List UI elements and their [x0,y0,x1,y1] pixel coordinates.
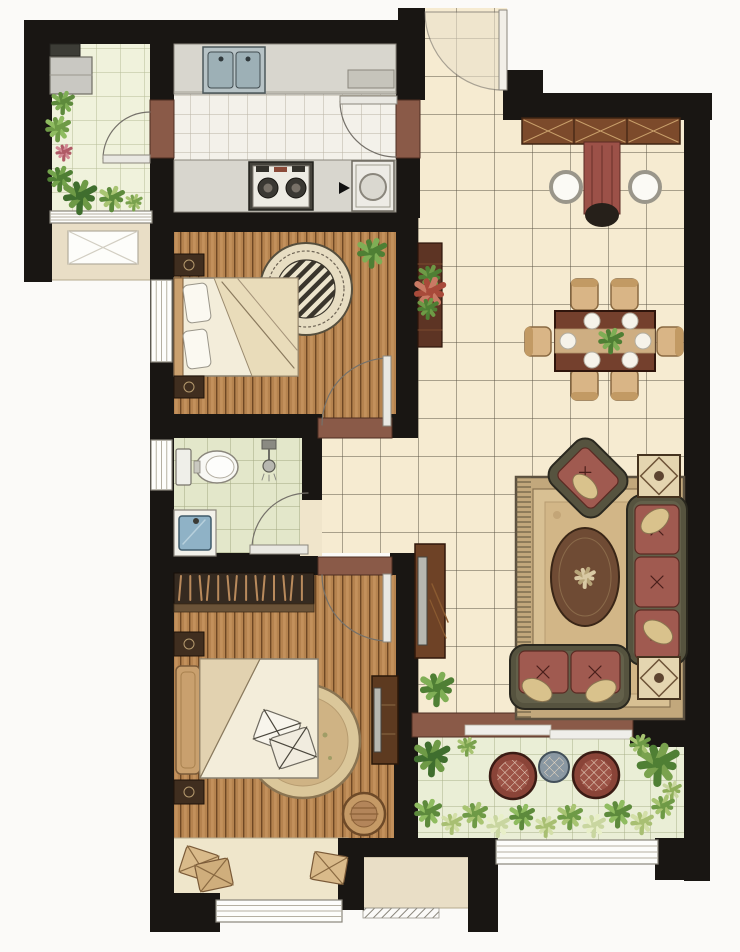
balcony-bush-left-center [428,753,437,762]
wall-entry-right-step [503,70,543,120]
rug-medallion [576,569,593,587]
window-balcony-bottom [496,840,658,864]
console-plant-green-bottom-center [425,305,430,310]
console-plant-flowers-center [426,288,434,296]
wall-entry-left [398,8,425,100]
bed1-headboard [174,278,183,376]
living-plant-tv-center [433,684,441,692]
garden-plant-1 [53,93,72,113]
ac-platform-bottom [363,857,470,908]
threshold-kitchen-entry [396,100,420,158]
flowerbed-6 [537,818,554,836]
window-bedroom1-left [151,280,172,362]
balcony-plant-r2 [631,736,648,754]
wall-garden-kitchen-lower [150,158,174,218]
nightstand-2b [174,780,204,804]
dining-centerpiece-center [608,337,614,343]
balcony-palm-right-center [653,758,663,768]
garden-plant-2-center [55,125,61,131]
flowerbed-9 [607,802,630,826]
nightstand-1b [174,376,204,398]
rug2-speckle-4 [328,756,332,760]
washing-machine-door [360,174,386,200]
threshold-bedroom1-door [318,418,392,438]
burner-left-inner [264,184,273,193]
window-garden-bottom [50,211,152,223]
garden-plant-big-center [76,192,84,200]
garden-door-leaf [103,155,150,163]
bed1-pillow-1 [182,283,211,324]
wall-bedroom1-bottom-right [390,414,418,438]
toilet-seat [206,456,234,478]
threshold-garden-kitchen [150,100,174,158]
flowerbed-5-center [519,813,525,819]
flowerbed-8-center [591,822,597,828]
balcony-table-lattice [543,756,565,778]
sink-drain-left [219,57,224,62]
garden-plant-1-center [60,99,66,105]
stove-knob-right [292,166,305,172]
window-bathroom-left [151,440,172,490]
flowerbed-11 [653,797,672,817]
bed1-pillow-2 [182,329,211,370]
entry-stool-right [630,172,660,202]
bedroom1-plant-center [368,248,375,255]
rug2-speckle-2 [323,733,328,738]
flowerbed-10 [632,813,651,833]
balcony-step-1 [465,725,551,735]
flowerbed-10-center [639,819,645,825]
garden-plant-big [66,183,94,212]
garden-plant-4 [102,188,123,210]
tv2-screen [374,688,381,752]
garden-cabinet-top [50,44,80,56]
wall-kitchen-bottom [150,210,418,232]
garden-plant-pink-center [62,150,66,154]
floor-plan-svg [0,0,740,952]
flowerbed-11-center [660,803,666,809]
threshold-bedroom2-door [318,557,392,575]
plate-4 [635,333,651,349]
wall-garden-left [24,20,52,282]
wall-garden-kitchen-upper [150,20,174,102]
flowerbed-9-center [615,810,622,817]
dining-chair-bottom1-back [571,392,598,400]
bed1-pillow-1-shape [182,283,211,324]
garden-plant-5 [127,196,141,210]
dining-chair-left-back [525,327,533,356]
bed1-pillow-2-shape [182,329,211,370]
bed2-headboard [176,666,200,774]
flowerbed-1-center [425,809,432,816]
garden-plant-4-center [109,195,115,201]
dining-chair-top1-back [571,279,598,287]
nightstand-1a [174,254,204,276]
wall-right [684,93,710,881]
entry-stool-left [551,172,581,202]
window-bay-bottom [216,900,342,922]
flowerbed-5 [512,806,533,828]
plate-1 [584,313,600,329]
wall-bedroom1-bottom-left [150,414,322,438]
flowerbed-6-center [543,823,548,828]
wall-balcony-br-step [655,862,710,880]
side-table-top-center [654,471,664,481]
flowerbed-3 [465,804,486,826]
toilet-tank [176,449,191,485]
garden-plant-5-center [132,200,136,204]
garden-plant-pink [57,146,71,160]
balcony-bush-left [417,743,447,774]
entry-door-leaf [499,10,507,90]
bedroom1-plant [360,241,384,266]
burner-right-inner [292,184,301,193]
dining-chair-top2-back [611,279,638,287]
hatch-strip [363,908,439,918]
flowerbed-3-center [472,811,478,817]
plate-6 [622,352,638,368]
stove-knob-center [274,167,287,172]
runner-end [585,203,619,227]
dining-centerpiece [601,330,622,352]
tv-screen-living [418,557,427,645]
wall-bay-bl-block [150,893,220,932]
bath-faucet [193,518,199,524]
kitchen-shelf [348,70,394,88]
wall-balcony-bl-band [352,838,498,857]
kitchen-door-leaf [340,96,397,104]
wall-kitchen-right-lower [396,158,420,218]
garden-plant-2 [48,118,69,140]
rug-medallion-center [582,574,587,579]
shower-base [262,440,276,449]
flowerbed-4-center [495,822,501,828]
plate-5 [584,352,600,368]
wall-platform-right-col [468,857,498,932]
flowerbed-2-center [449,820,454,825]
stove-knob-left [256,166,269,172]
toilet-hinge [194,461,200,473]
plate-2 [622,313,638,329]
flowerbed-1 [417,801,440,825]
wicker-chair-left-lattice [497,760,529,792]
bedroom1-door-leaf [383,356,391,426]
balcony-plant-top [459,739,475,755]
console-plant-green-bottom [419,300,436,318]
bay-pillow-3 [310,851,348,884]
flowerbed-2 [443,815,460,833]
dining-chair-bottom2-back [611,392,638,400]
bedroom2-door-leaf [383,574,391,642]
wall-kitchen-top [172,20,420,44]
flowerbed-7-center [567,813,573,819]
flowerbed-8 [584,816,603,836]
living-plant-tv [423,675,451,704]
side-table-bottom-center [654,673,664,683]
nightstand-2a [174,632,204,656]
shower-head [263,460,275,472]
rug-orn-1 [553,511,561,519]
balcony-plant-top-center [465,744,470,749]
plate-3 [560,333,576,349]
wall-garden-top [24,20,154,44]
wicker-chair-right-lattice [580,759,612,791]
flowerbed-4 [488,816,507,836]
wall-bedroom1-right [396,212,418,438]
bathroom-door-leaf [250,545,308,554]
dining-chair-right-back [675,327,683,356]
flowerbed-7 [560,806,581,828]
balcony-plant-r2-center [637,741,642,746]
sink-drain-right [246,57,251,62]
console-plant-green-top-center [427,273,433,279]
balcony-plant-r3-center [670,788,675,793]
wardrobe-shelf [174,604,314,612]
garden-plant-3-center [57,175,63,181]
balcony-step-2 [550,730,632,739]
floor-plan [0,0,740,952]
